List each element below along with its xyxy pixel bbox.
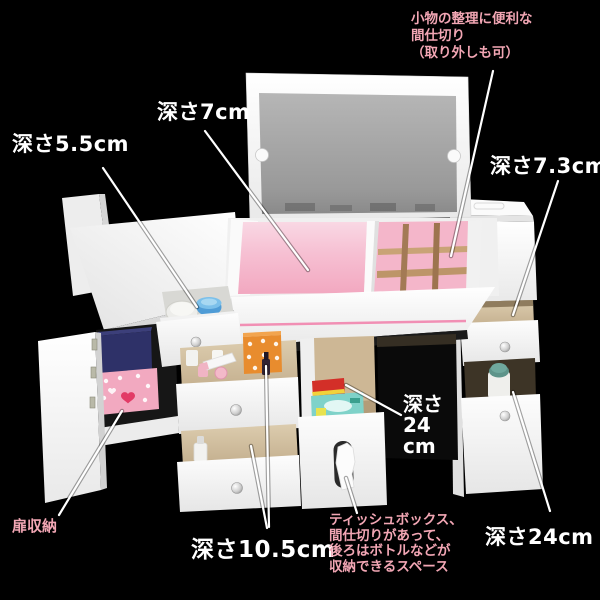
bottle-green-cap	[488, 363, 510, 399]
nail-polish-cap	[264, 352, 269, 360]
pink-jar	[215, 367, 227, 379]
label-line: 間仕切りがあって、	[329, 529, 463, 545]
heart-pouch	[98, 368, 159, 415]
label-line: （取り外しも可）	[411, 45, 533, 62]
label-line: 小物の整理に便利な	[411, 11, 533, 28]
label-door-storage: 扉収納	[12, 515, 57, 536]
mirror-clip-right	[448, 150, 461, 163]
label-depth-5-5cm: 深さ5.5cm	[12, 128, 129, 158]
label-depth-7-3cm: 深さ7.3cm	[490, 150, 600, 180]
label-line: 24	[403, 415, 443, 436]
door-hinge	[90, 397, 95, 408]
door-hinge	[92, 339, 97, 350]
label-depth-10-5cm: 深さ10.5cm	[191, 530, 335, 564]
label-line: ティッシュボックス、	[329, 513, 463, 529]
annotated-product-photo: 小物の整理に便利な 間仕切り （取り外しも可） 深さ7cm 深さ5.5cm 深さ…	[0, 0, 600, 600]
label-line: 間仕切り	[411, 28, 533, 45]
label-line: cm	[403, 436, 443, 457]
label-depth-7cm: 深さ7cm	[157, 96, 250, 126]
mirror-lid	[246, 73, 471, 220]
label-depth-24cm-mid: 深さ 24 cm	[403, 394, 443, 457]
deep-drawer-knob	[500, 411, 510, 421]
pink-tray	[238, 222, 367, 294]
label-line: 収納できるスペース	[329, 560, 463, 576]
bottom-drawer	[177, 424, 301, 512]
cabinet-door	[38, 332, 101, 503]
label-tissue-note: ティッシュボックス、 間仕切りがあって、 後ろはボトルなどが 収納できるスペース	[329, 513, 463, 575]
bottom-drawer-knob	[232, 483, 243, 494]
middle-drawer-knob	[231, 405, 242, 416]
vanity-desk-photo	[0, 0, 600, 600]
label-partition-note: 小物の整理に便利な 間仕切り （取り外しも可）	[411, 11, 533, 62]
label-line: 後ろはボトルなどが	[329, 544, 463, 560]
label-line: 深さ	[403, 394, 443, 415]
navy-box	[97, 327, 152, 373]
small-drawer-knob	[191, 337, 201, 347]
label-depth-24cm-right: 深さ24cm	[485, 521, 594, 551]
mirror-glass	[259, 93, 457, 214]
white-item	[186, 350, 198, 366]
mirror-clip-left	[256, 149, 269, 162]
door-hinge	[91, 367, 96, 378]
shallow-drawer-knob	[500, 342, 510, 352]
